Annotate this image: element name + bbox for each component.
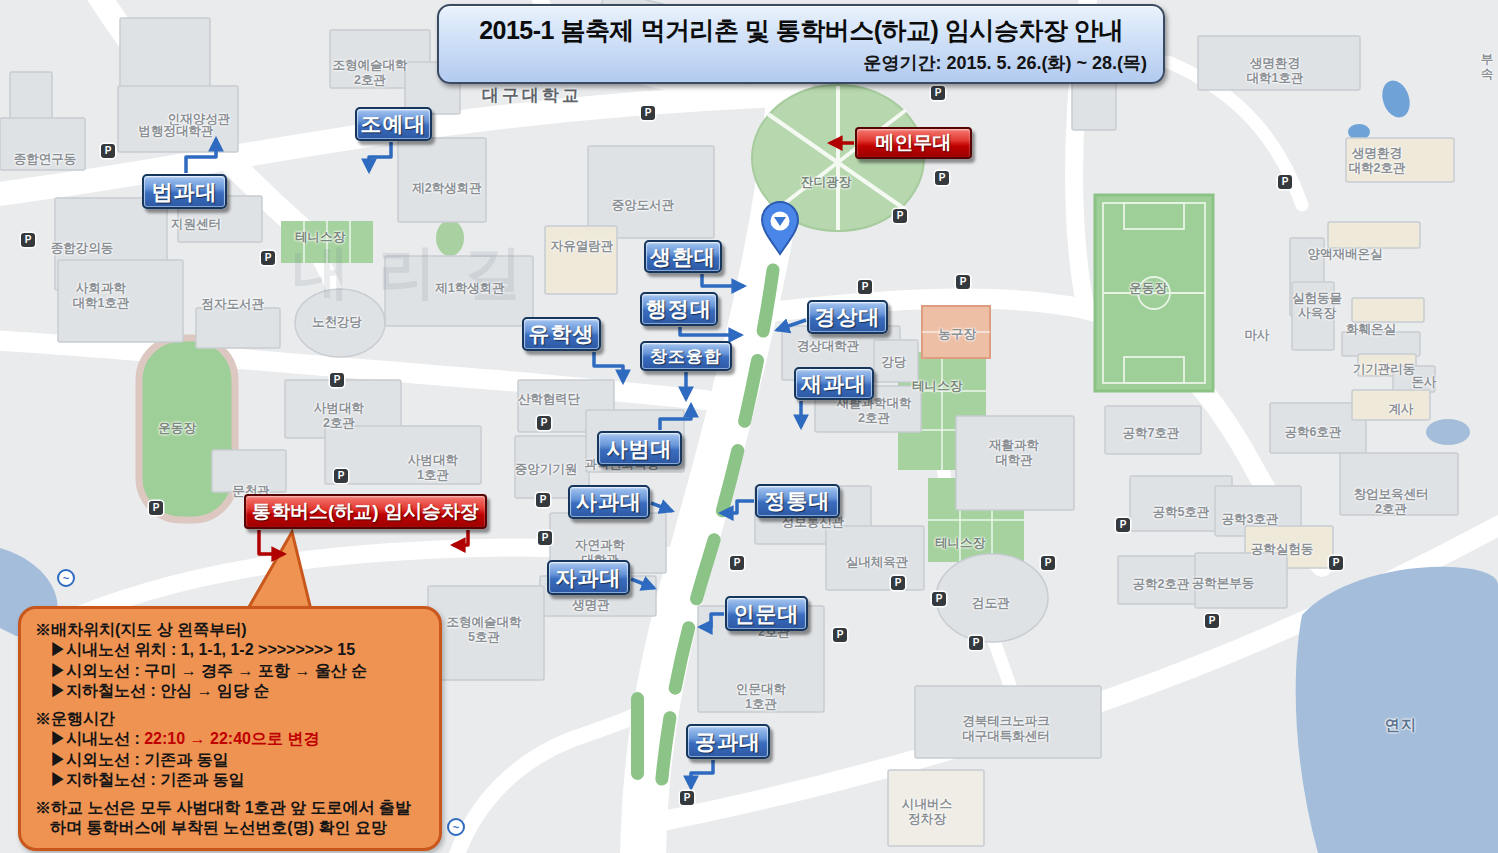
- bubble-section-title: ※배차위치(지도 상 왼쪽부터): [35, 620, 431, 640]
- bubble-section: ※운행시간▶시내노선 : 22:10 → 22:40으로 변경▶시외노선 : 기…: [35, 709, 431, 791]
- bubble-text: 하며 통학버스에 부착된 노선번호(명) 확인 요망: [50, 819, 387, 836]
- bubble-line: ▶지하철노선 : 기존과 동일: [35, 770, 431, 790]
- bubble-highlight-text: 22:10 → 22:40으로 변경: [144, 730, 319, 747]
- marker-gyeongsangdae: 경상대: [807, 300, 888, 334]
- bubble-line: ▶시외노선 : 구미 → 경주 → 포항 → 울산 순: [35, 661, 431, 681]
- marker-joyedae: 조예대: [355, 107, 432, 141]
- marker-gonggwadae: 공과대: [686, 724, 770, 759]
- marker-saenghwandae: 생환대: [644, 240, 722, 273]
- marker-beopgwadae: 법과대: [142, 174, 227, 209]
- marker-jaegwadae: 재과대: [794, 367, 874, 400]
- banner-subtitle: 운영기간: 2015. 5. 26.(화) ~ 28.(목): [439, 51, 1163, 75]
- campus-map-poster: 내리길 인재양성관신애학사 3호관종합연구동법행정대학관조형예술대학 2호관대구…: [0, 0, 1498, 853]
- bubble-text: ▶시외노선 : 구미 → 경주 → 포항 → 울산 순: [50, 662, 367, 679]
- title-banner: 2015-1 봄축제 먹거리촌 및 통학버스(하교) 임시승차장 안내 운영기간…: [437, 4, 1165, 84]
- marker-main-stage: 메인무대: [855, 127, 972, 159]
- bubble-text: ▶시내노선 :: [50, 730, 144, 747]
- info-bubble-content: ※배차위치(지도 상 왼쪽부터)▶시내노선 위치 : 1, 1-1, 1-2 >…: [35, 620, 431, 839]
- marker-haengjeongdae: 행정대: [640, 292, 718, 326]
- bubble-section: ※배차위치(지도 상 왼쪽부터)▶시내노선 위치 : 1, 1-1, 1-2 >…: [35, 620, 431, 702]
- bubble-section-title: ※운행시간: [35, 709, 431, 729]
- bubble-text: ▶시내노선 위치 : 1, 1-1, 1-2 >>>>>>>> 15: [50, 641, 355, 658]
- marker-jagwadae: 자과대: [547, 560, 630, 595]
- marker-changjoyunghap: 창조융합: [640, 341, 732, 371]
- marker-bus-stop: 통학버스(하교) 임시승차장: [244, 494, 487, 529]
- bubble-text: ▶시외노선 : 기존과 동일: [50, 751, 229, 768]
- bubble-line: ▶지하철노선 : 안심 → 임당 순: [35, 681, 431, 701]
- marker-inmundae: 인문대: [725, 596, 808, 631]
- bubble-section: ※하교 노선은 모두 사범대학 1호관 앞 도로에서 출발하며 통학버스에 부착…: [35, 798, 431, 839]
- bubble-text: ▶지하철노선 : 안심 → 임당 순: [50, 682, 270, 699]
- marker-jeongtongdae: 정통대: [755, 484, 840, 518]
- bubble-section-title: ※하교 노선은 모두 사범대학 1호관 앞 도로에서 출발: [35, 798, 431, 818]
- info-bubble: ※배차위치(지도 상 왼쪽부터)▶시내노선 위치 : 1, 1-1, 1-2 >…: [18, 606, 442, 851]
- bubble-line: 하며 통학버스에 부착된 노선번호(명) 확인 요망: [35, 818, 431, 838]
- bubble-line: ▶시내노선 : 22:10 → 22:40으로 변경: [35, 729, 431, 749]
- marker-yuhaksaeng: 유학생: [522, 317, 601, 351]
- marker-sagwadae: 사과대: [568, 485, 650, 519]
- bubble-line: ▶시외노선 : 기존과 동일: [35, 750, 431, 770]
- bubble-line: ▶시내노선 위치 : 1, 1-1, 1-2 >>>>>>>> 15: [35, 640, 431, 660]
- banner-title: 2015-1 봄축제 먹거리촌 및 통학버스(하교) 임시승차장 안내: [439, 14, 1163, 47]
- bubble-text: ▶지하철노선 : 기존과 동일: [50, 771, 245, 788]
- marker-sabeomdae: 사범대: [597, 431, 682, 466]
